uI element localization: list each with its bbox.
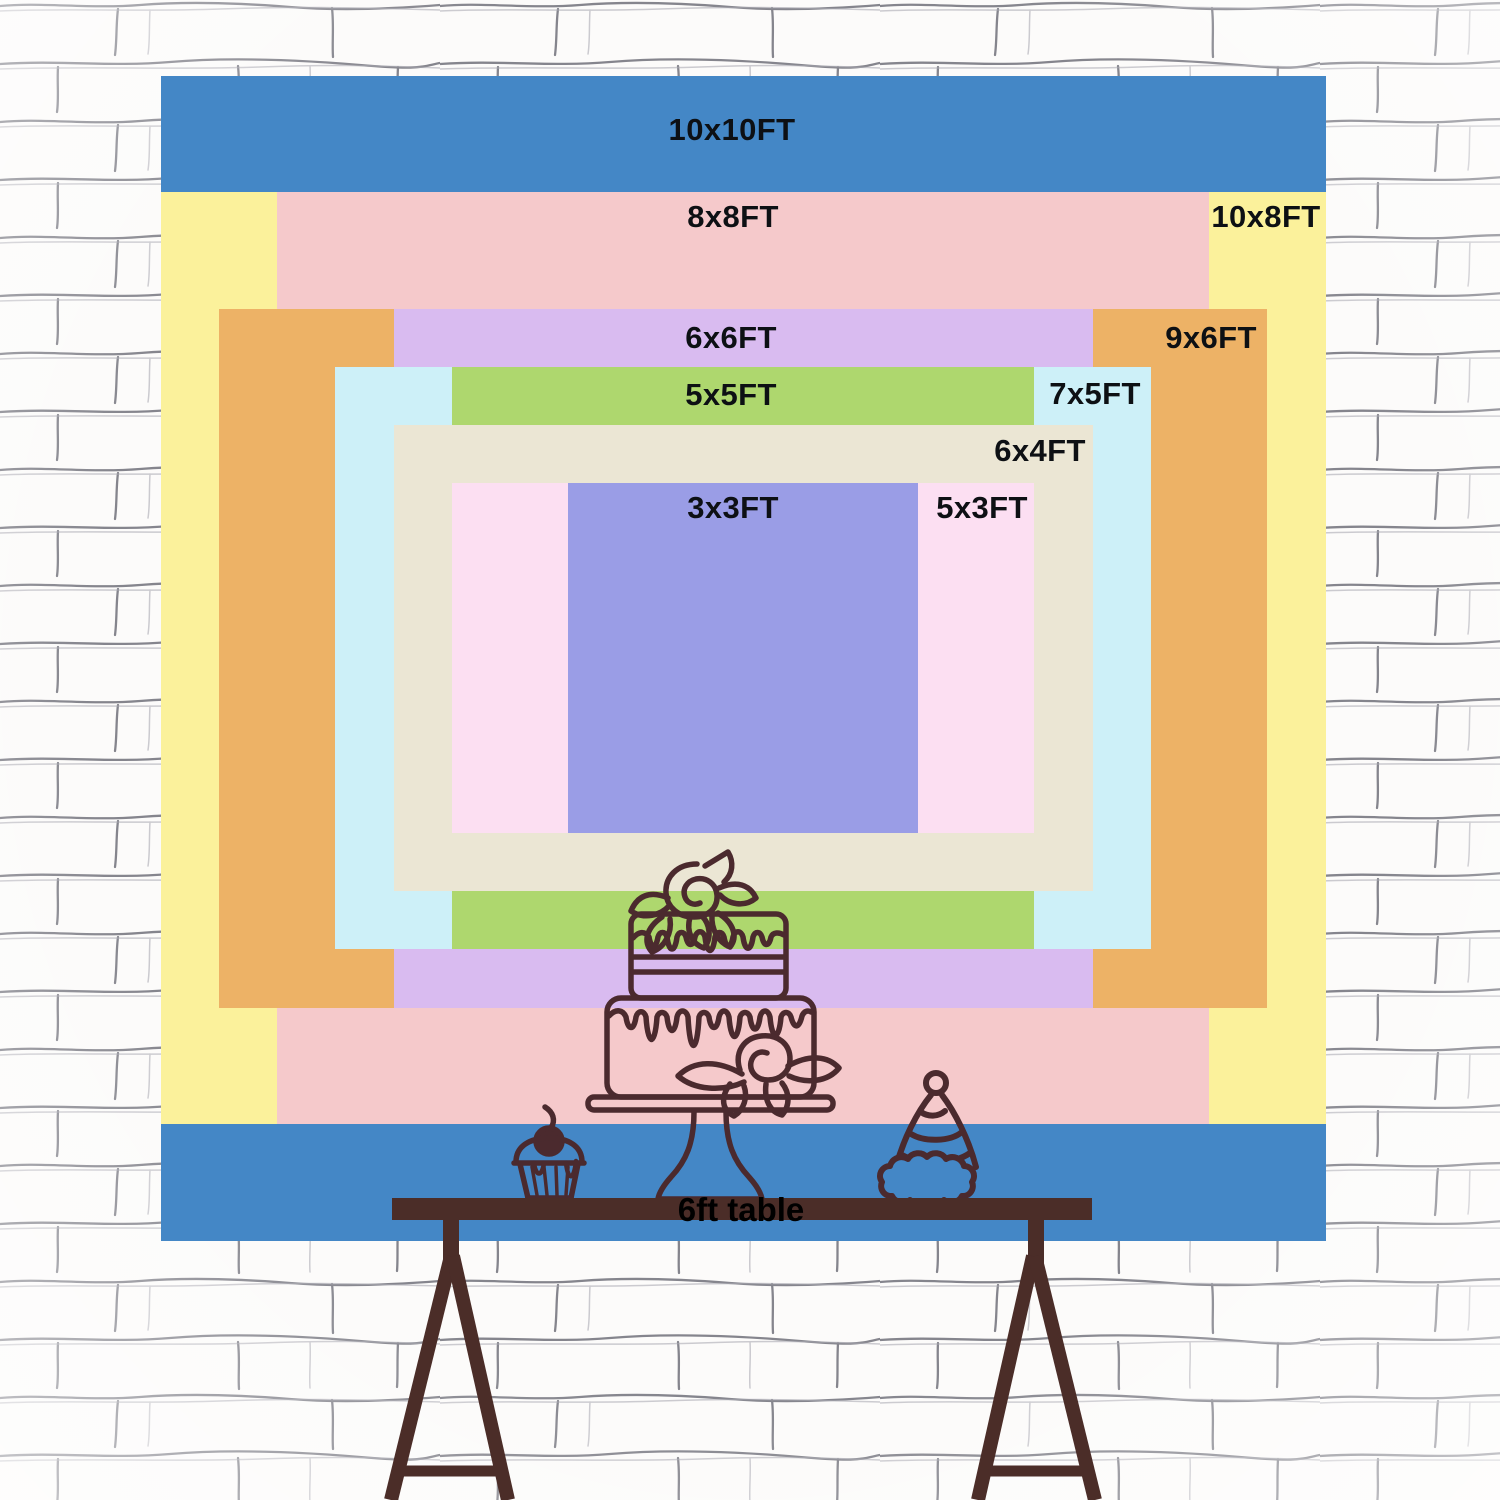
size-label-5x5ft: 5x5FT — [685, 377, 777, 413]
backdrop-size-chart: 10x10FT10x8FT8x8FT9x6FT6x6FT7x5FT5x5FT6x… — [0, 0, 1500, 1500]
size-label-7x5ft: 7x5FT — [1049, 376, 1141, 412]
table-size-label: 6ft table — [678, 1191, 805, 1229]
size-label-5x3ft: 5x3FT — [936, 490, 1028, 526]
size-label-3x3ft: 3x3FT — [687, 490, 779, 526]
size-label-9x6ft: 9x6FT — [1165, 320, 1257, 356]
size-label-8x8ft: 8x8FT — [687, 199, 779, 235]
size-label-6x6ft: 6x6FT — [685, 320, 777, 356]
size-label-10x10ft: 10x10FT — [669, 112, 796, 148]
size-label-6x4ft: 6x4FT — [994, 433, 1086, 469]
size-labels: 10x10FT10x8FT8x8FT9x6FT6x6FT7x5FT5x5FT6x… — [0, 0, 1500, 1500]
size-label-10x8ft: 10x8FT — [1211, 199, 1320, 235]
